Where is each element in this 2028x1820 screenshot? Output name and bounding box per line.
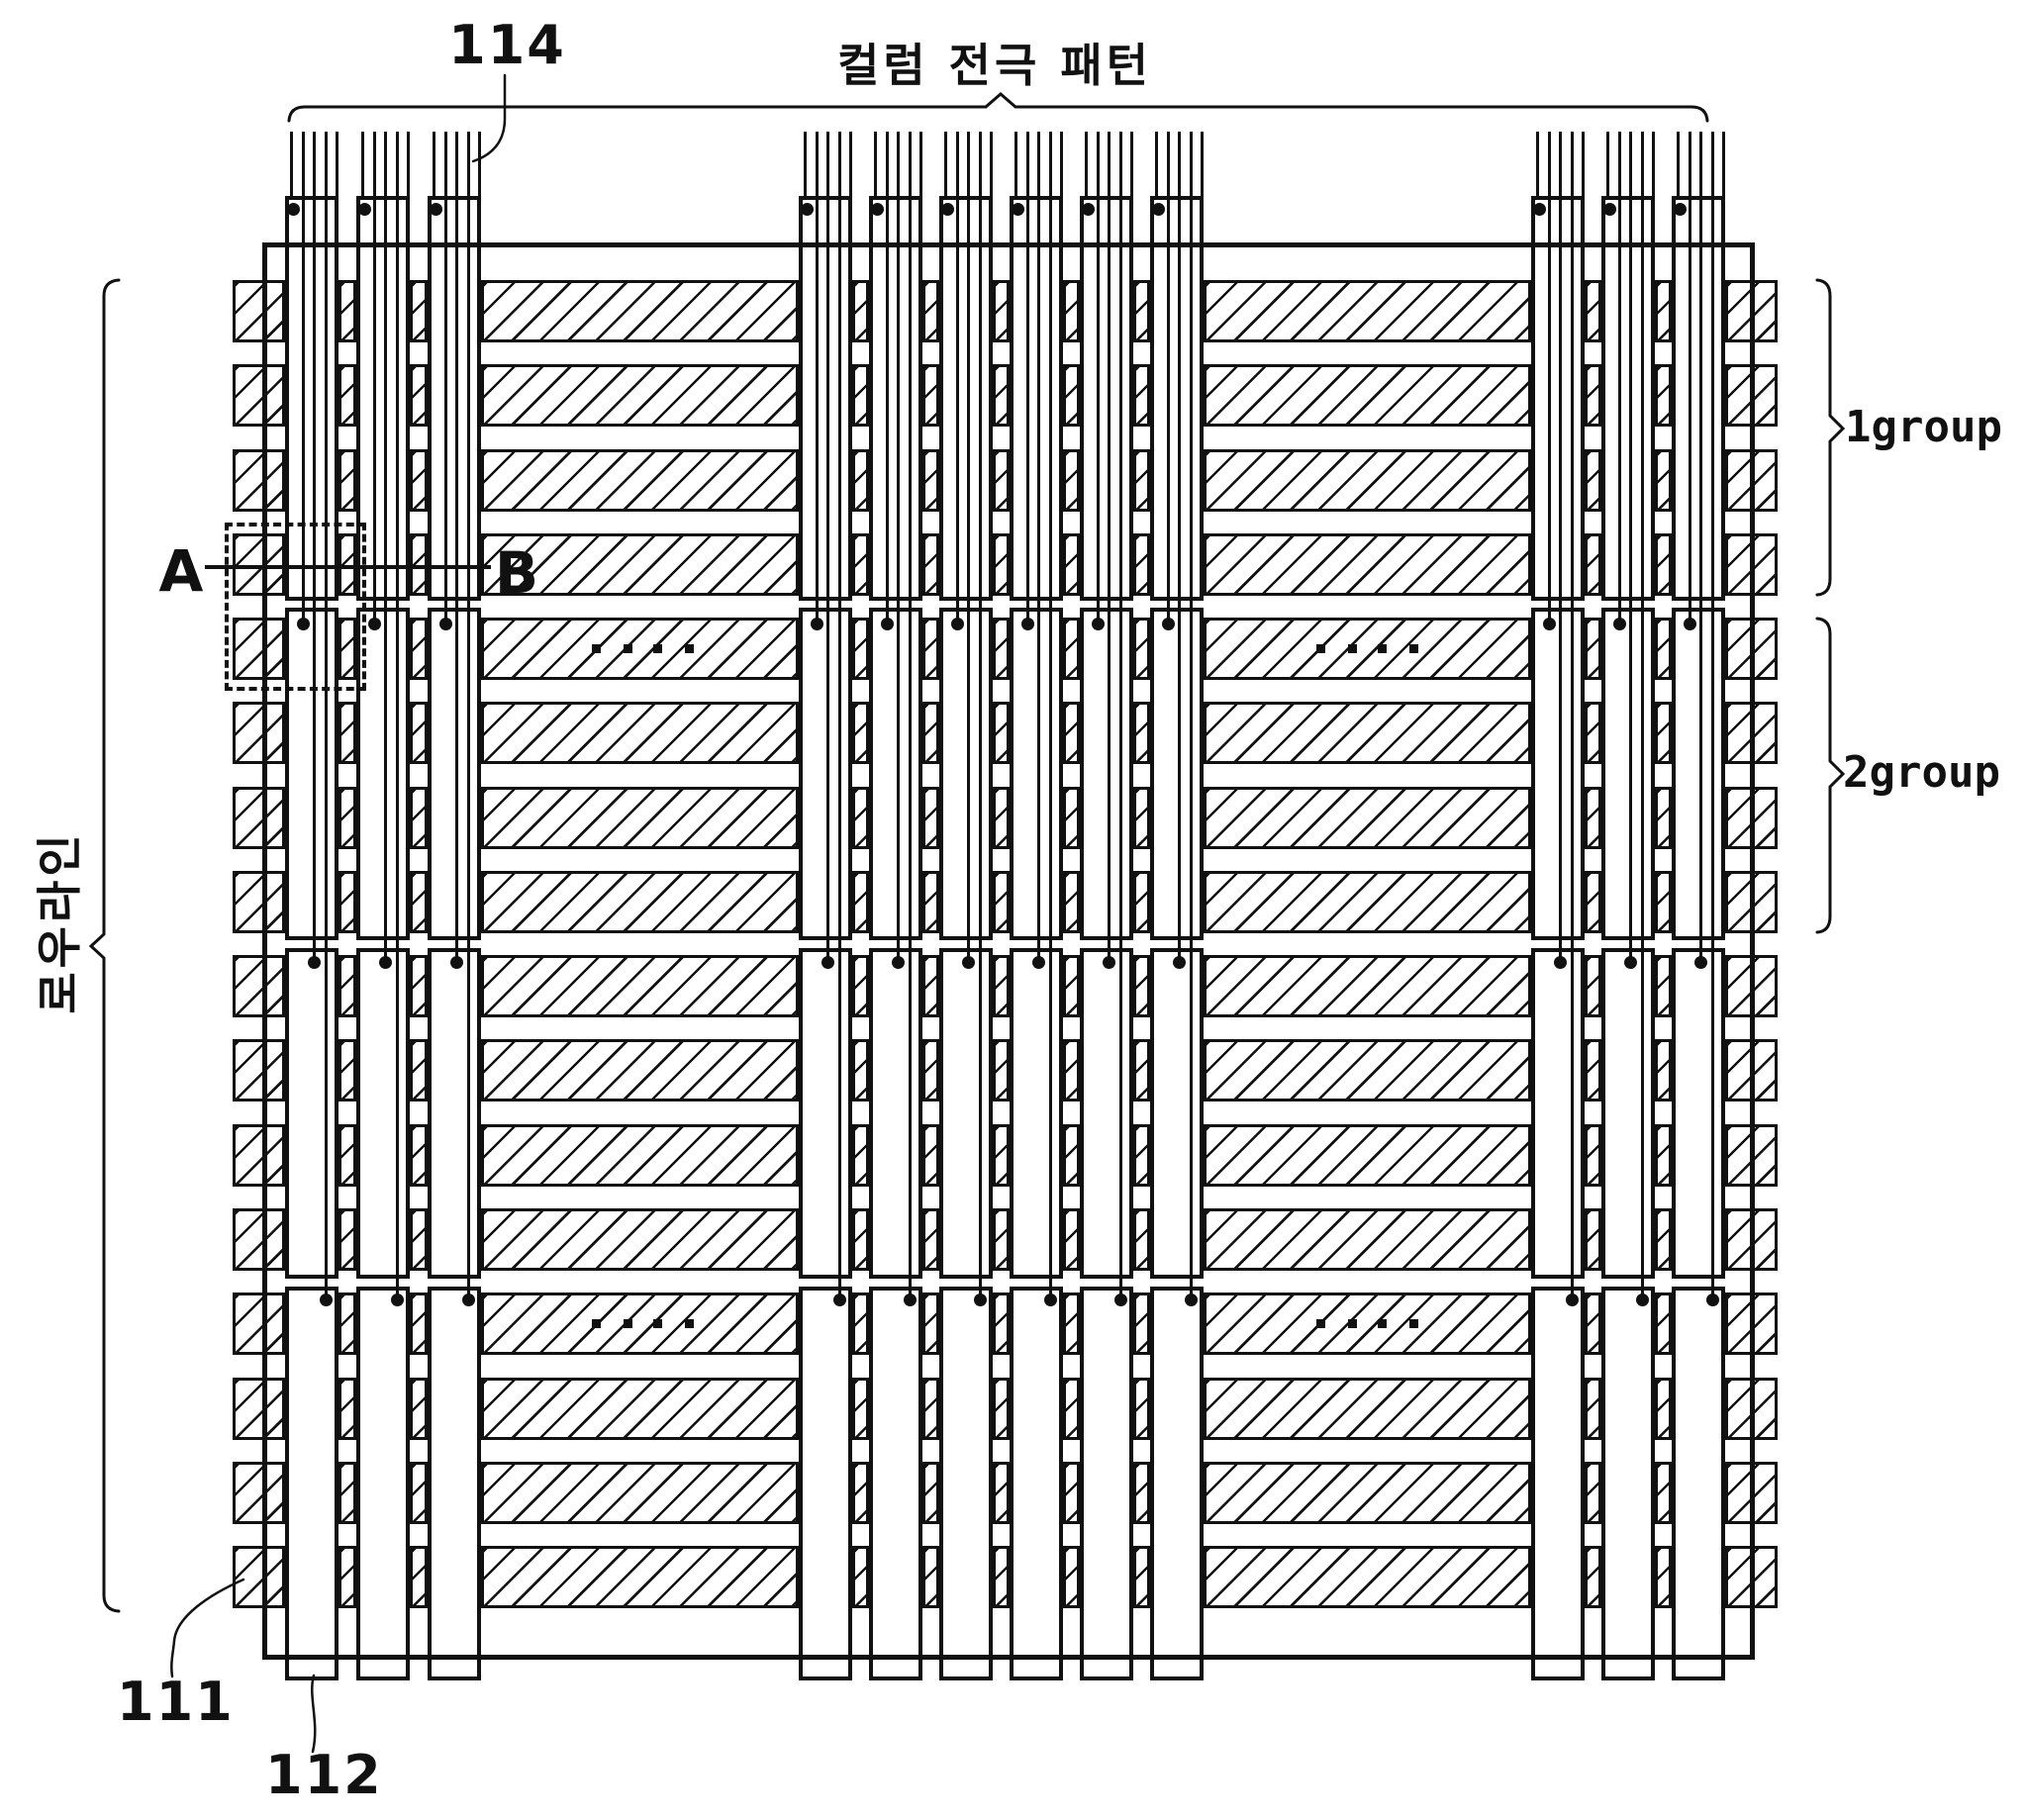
leader-114 <box>473 75 505 161</box>
ref-label-114: 114 <box>435 14 579 76</box>
section-label-a: A <box>156 537 206 605</box>
annotation-overlay <box>0 0 2028 1820</box>
left-brace-row-lines <box>91 280 119 1611</box>
label-1group: 1group <box>1845 402 2002 452</box>
brace-1group <box>1817 280 1843 595</box>
ref-label-111: 111 <box>117 1671 216 1733</box>
leader-112 <box>312 1676 315 1752</box>
section-label-b: B <box>492 539 541 607</box>
patent-figure-electrode-pattern: 114 컬럼 전극 패턴 로우라인 1group 2group A B 111 … <box>0 0 2028 1820</box>
top-brace-column-pattern <box>289 94 1707 121</box>
ref-label-112: 112 <box>265 1744 364 1806</box>
title-row-line: 로우라인 <box>33 784 86 1061</box>
label-2group: 2group <box>1843 747 2000 798</box>
leader-111 <box>171 1580 243 1676</box>
brace-2group <box>1817 619 1843 932</box>
title-column-electrode-pattern: 컬럼 전극 패턴 <box>747 30 1242 95</box>
